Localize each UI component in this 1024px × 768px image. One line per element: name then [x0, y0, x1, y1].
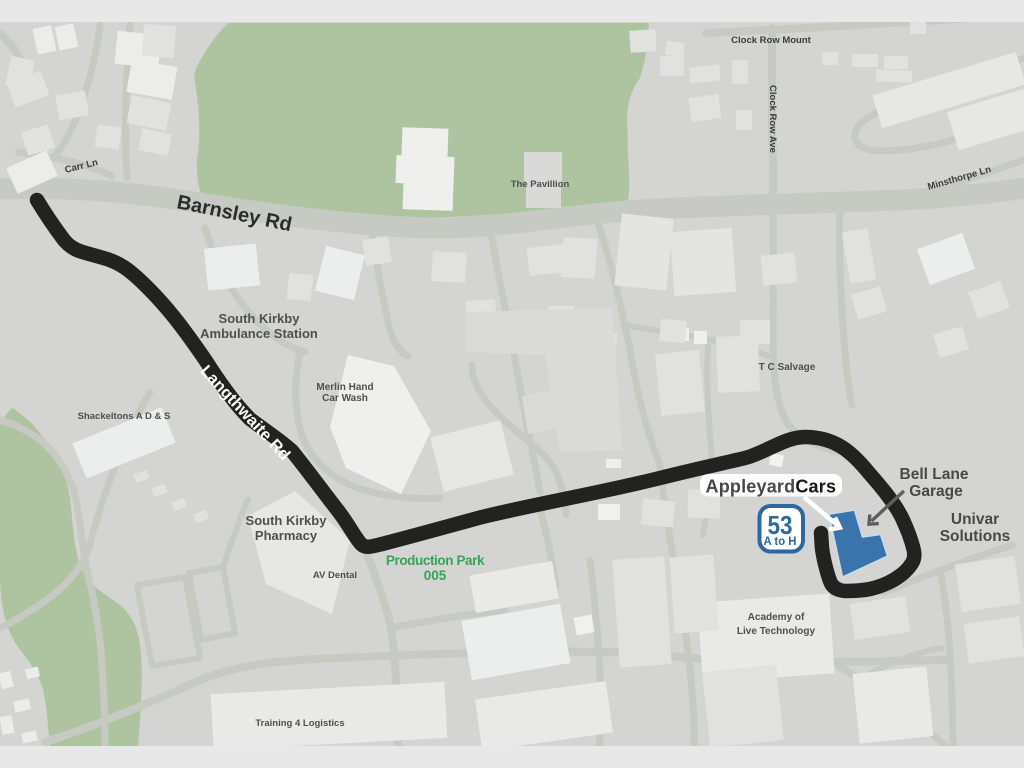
- svg-text:Live Technology: Live Technology: [737, 626, 816, 637]
- svg-text:Academy of: Academy of: [748, 612, 805, 623]
- svg-text:Univar: Univar: [951, 511, 999, 528]
- svg-text:Car Wash: Car Wash: [322, 393, 368, 404]
- svg-text:Ambulance Station: Ambulance Station: [200, 326, 318, 341]
- svg-text:Pharmacy: Pharmacy: [255, 528, 318, 543]
- svg-text:A to H: A to H: [764, 536, 797, 548]
- svg-text:AV Dental: AV Dental: [313, 570, 357, 581]
- svg-text:South Kirkby: South Kirkby: [246, 513, 328, 528]
- svg-text:AppleyardCars: AppleyardCars: [706, 477, 837, 497]
- svg-text:Training 4 Logistics: Training 4 Logistics: [255, 718, 344, 729]
- svg-text:Production Park: Production Park: [386, 553, 485, 568]
- svg-text:Garage: Garage: [909, 483, 963, 500]
- svg-text:Bell Lane: Bell Lane: [900, 466, 969, 483]
- svg-text:Merlin Hand: Merlin Hand: [316, 382, 373, 393]
- svg-text:Clock Row Ave: Clock Row Ave: [767, 85, 778, 153]
- svg-text:Shackeltons A D & S: Shackeltons A D & S: [78, 411, 171, 422]
- svg-text:South Kirkby: South Kirkby: [219, 311, 301, 326]
- svg-text:Clock Row Mount: Clock Row Mount: [731, 35, 812, 46]
- svg-text:005: 005: [424, 568, 447, 583]
- svg-text:Solutions: Solutions: [940, 528, 1011, 545]
- svg-text:T C Salvage: T C Salvage: [759, 362, 816, 373]
- svg-text:The Pavillion: The Pavillion: [511, 179, 570, 190]
